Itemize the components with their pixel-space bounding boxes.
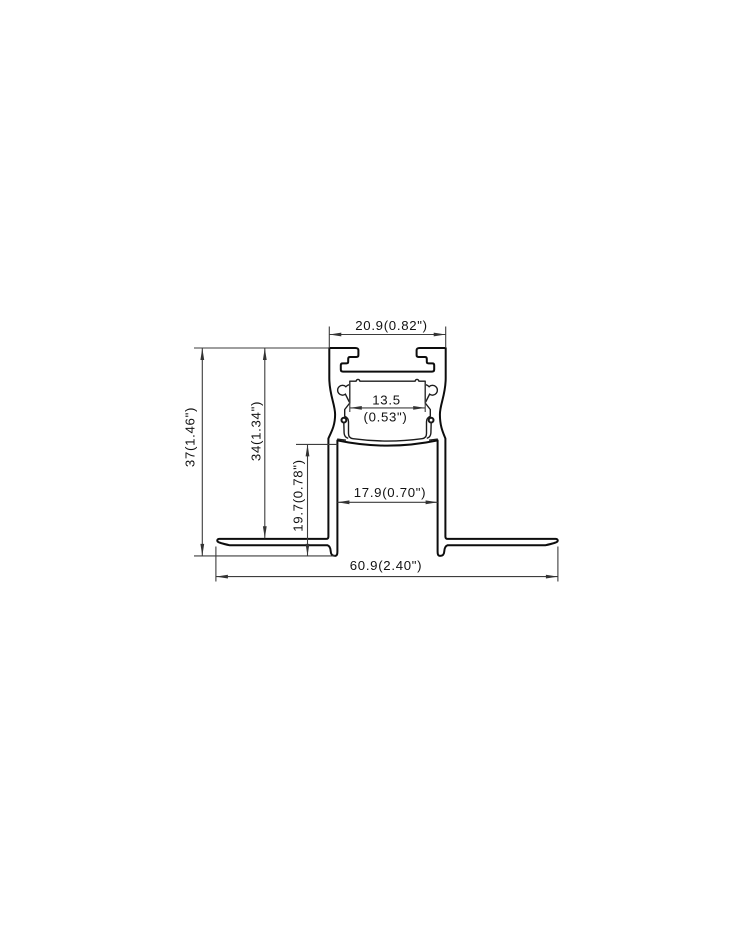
svg-text:34(1.34"): 34(1.34") <box>249 401 264 461</box>
svg-text:20.9(0.82"): 20.9(0.82") <box>355 318 428 333</box>
svg-text:37(1.46"): 37(1.46") <box>183 407 198 467</box>
svg-text:13.5: 13.5 <box>372 393 400 408</box>
svg-text:(0.53"): (0.53") <box>363 410 407 425</box>
svg-text:19.7(0.78"): 19.7(0.78") <box>290 459 305 532</box>
svg-text:17.9(0.70"): 17.9(0.70") <box>354 485 427 500</box>
svg-text:60.9(2.40"): 60.9(2.40") <box>350 558 423 573</box>
